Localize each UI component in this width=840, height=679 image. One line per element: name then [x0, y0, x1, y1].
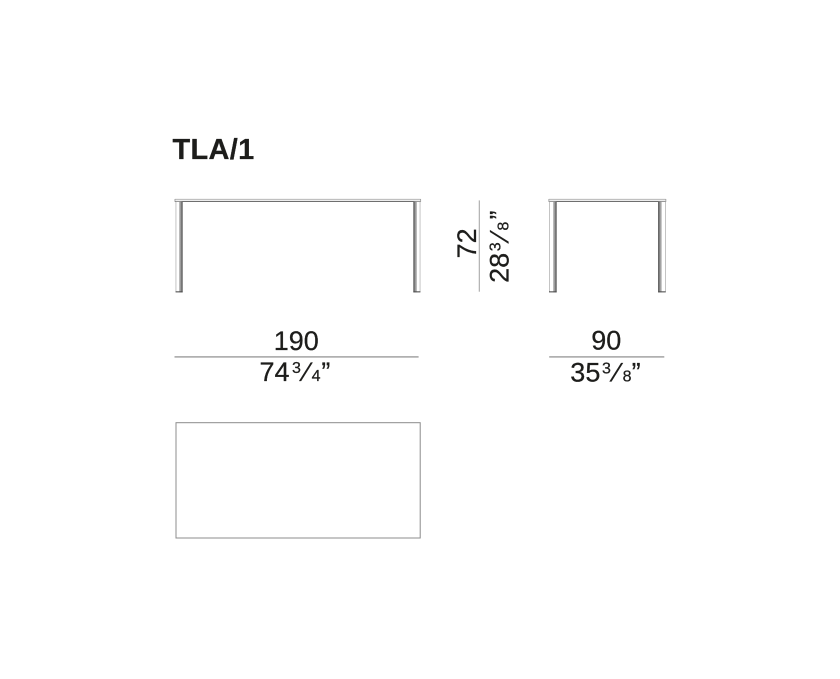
svg-text:90: 90: [591, 326, 621, 356]
svg-text:72: 72: [452, 228, 482, 258]
svg-text:TLA/1: TLA/1: [173, 134, 255, 166]
svg-text:190: 190: [274, 326, 319, 356]
